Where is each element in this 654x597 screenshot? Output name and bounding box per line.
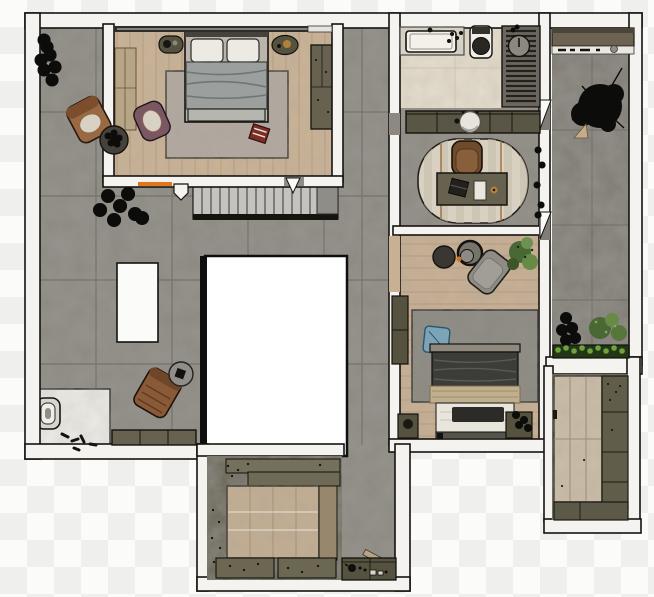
- bed2-blanket: [430, 386, 520, 403]
- stairs-landing-mat: [317, 184, 338, 214]
- wall-protrusion-top: [197, 444, 344, 456]
- wall-bottom-left: [25, 444, 207, 459]
- notepad[interactable]: [474, 181, 486, 200]
- stairs-lower-shadow: [193, 214, 338, 220]
- bedroom2-nightstand-left[interactable]: [398, 414, 418, 438]
- nightstand-right-gold-item: [283, 40, 291, 48]
- ring-table-inner: [461, 250, 474, 263]
- staircase[interactable]: [193, 183, 338, 220]
- walk-in-closet-right[interactable]: [552, 374, 628, 520]
- plant-leaf-3: [507, 258, 519, 270]
- round-side-table[interactable]: [169, 362, 193, 386]
- wall-closet-bottom: [544, 519, 641, 533]
- double-bed-1[interactable]: [185, 30, 268, 122]
- floorplan: [0, 0, 654, 597]
- closetB-low-cab-2[interactable]: [278, 558, 336, 578]
- green-plant-2: [605, 313, 619, 327]
- vanity-hall[interactable]: [406, 111, 540, 133]
- render-canvas[interactable]: [0, 0, 654, 597]
- bedroom1-glazing-end: [308, 26, 332, 32]
- bed2-headboard: [430, 344, 520, 352]
- room-master-bedroom[interactable]: [108, 24, 338, 182]
- void-area: [205, 256, 347, 456]
- desk[interactable]: [437, 173, 507, 205]
- bathtub-faucet: [428, 28, 433, 33]
- round-coffee-table[interactable]: [433, 246, 455, 268]
- storage-bench-body: [112, 430, 196, 445]
- balcony-floor-concrete: [552, 25, 634, 362]
- door-gap-bedroom2: [389, 236, 400, 292]
- door-gap-vanity-hall: [389, 113, 400, 135]
- bedroom2-nightstand-right[interactable]: [506, 412, 532, 438]
- balcony-shelf-top-strip: [552, 28, 634, 33]
- toilet2-seat: [473, 38, 490, 55]
- orange-wall-vent: [138, 182, 172, 186]
- kettle-body: [348, 564, 356, 572]
- wall-closet-left-side: [544, 366, 553, 522]
- nightstand-left-decor2: [173, 41, 178, 46]
- kitchen-island[interactable]: [117, 263, 158, 342]
- void-left-edge: [200, 256, 207, 456]
- corner-plant[interactable]: [41, 40, 55, 80]
- wall-closet-right-side: [627, 357, 640, 527]
- orange-decor-dot: [456, 256, 461, 261]
- vanity-drain: [454, 118, 459, 123]
- closetB-shelf-lower[interactable]: [248, 472, 340, 486]
- nightstand-left-top: [159, 36, 183, 53]
- wall-bedroom1-left: [103, 24, 114, 182]
- green-plant-3: [611, 325, 627, 341]
- plant-leaf-4: [521, 237, 533, 249]
- wall-left: [25, 13, 40, 459]
- toilet2-tank: [472, 27, 490, 34]
- desk-chair[interactable]: [452, 141, 482, 175]
- wall-bedroom2-bottom: [389, 439, 550, 452]
- small-appliance-box-2: [378, 571, 383, 575]
- wall-balcony-right: [629, 13, 642, 366]
- toilet-bowl: [45, 408, 51, 419]
- bed1-foot-bench: [188, 109, 265, 121]
- wall-bench[interactable]: [115, 48, 136, 130]
- nightstand-right[interactable]: [272, 36, 298, 55]
- closetR-low-row[interactable]: [554, 502, 628, 520]
- nightstand2L-plant: [403, 419, 413, 429]
- nightstand2R-plant: [516, 415, 528, 428]
- service-corridor[interactable]: [342, 558, 396, 580]
- nightstand-left[interactable]: [159, 36, 183, 53]
- small-appliance-box-1: [370, 570, 376, 575]
- closetB-wood-strip: [319, 486, 337, 560]
- central-void: [200, 256, 347, 456]
- nightstand-right-dot: [277, 44, 281, 48]
- bed2-foot-rail: [436, 432, 514, 439]
- closetR-door-handle: [553, 410, 557, 419]
- bed1-pillow-left: [191, 39, 223, 62]
- walk-in-shower[interactable]: [502, 26, 540, 107]
- bed1-pillow-right: [227, 39, 259, 62]
- closetB-shelf-upper[interactable]: [226, 459, 340, 473]
- nightstand-left-decor: [163, 40, 171, 48]
- plant-side-table[interactable]: [100, 126, 128, 154]
- desk-gold-dot: [493, 189, 495, 191]
- closetB-low-cab-1[interactable]: [216, 558, 274, 578]
- storage-bench[interactable]: [112, 430, 196, 445]
- closetR-cabinet-column[interactable]: [602, 376, 628, 510]
- wall-protrusion-left: [197, 444, 208, 591]
- bathroom-toilet[interactable]: [470, 26, 492, 58]
- bed2-tv-tray: [452, 407, 504, 422]
- hedge-planter[interactable]: [553, 345, 629, 358]
- bed2-post-left: [437, 433, 443, 439]
- wall-study-bedroom2: [393, 226, 546, 235]
- desk-chair-seat: [456, 149, 478, 173]
- wall-protrusion-right: [395, 444, 410, 591]
- balcony-band-bowl: [611, 46, 618, 53]
- wall-bedroom1-right: [332, 24, 343, 182]
- toilet-alcove[interactable]: [30, 389, 110, 445]
